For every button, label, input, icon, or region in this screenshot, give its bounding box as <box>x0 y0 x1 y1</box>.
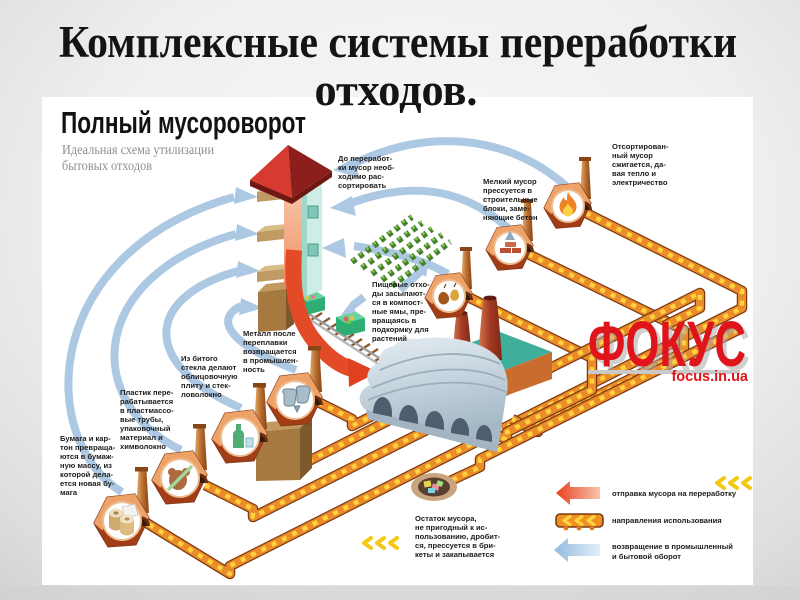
svg-text:Идеальная схема утилизации: Идеальная схема утилизации <box>62 142 214 157</box>
svg-text:Пищевые отхо-ды засыпают-ся в: Пищевые отхо-ды засыпают-ся в компост-ны… <box>372 280 430 343</box>
svg-text:Мелкий мусорпрессуется встроит: Мелкий мусорпрессуется встроительныеблок… <box>483 177 538 222</box>
svg-text:отходов.: отходов. <box>315 65 478 115</box>
svg-text:focus.in.ua: focus.in.ua <box>671 369 748 385</box>
svg-text:направления использования: направления использования <box>612 516 722 525</box>
svg-text:отправка мусора на переработку: отправка мусора на переработку <box>612 489 737 498</box>
svg-text:Бумага и кар-тон превраща-ются: Бумага и кар-тон превраща-ются в бумаж-н… <box>60 434 116 497</box>
svg-text:бытовых отходов: бытовых отходов <box>62 158 152 173</box>
svg-text:Отсортирован-ный мусорсжигаетс: Отсортирован-ный мусорсжигается, да-вая … <box>612 142 669 187</box>
svg-text:Полный мусороворот: Полный мусороворот <box>61 105 306 140</box>
svg-text:Комплексные системы переработк: Комплексные системы переработки <box>59 17 737 67</box>
